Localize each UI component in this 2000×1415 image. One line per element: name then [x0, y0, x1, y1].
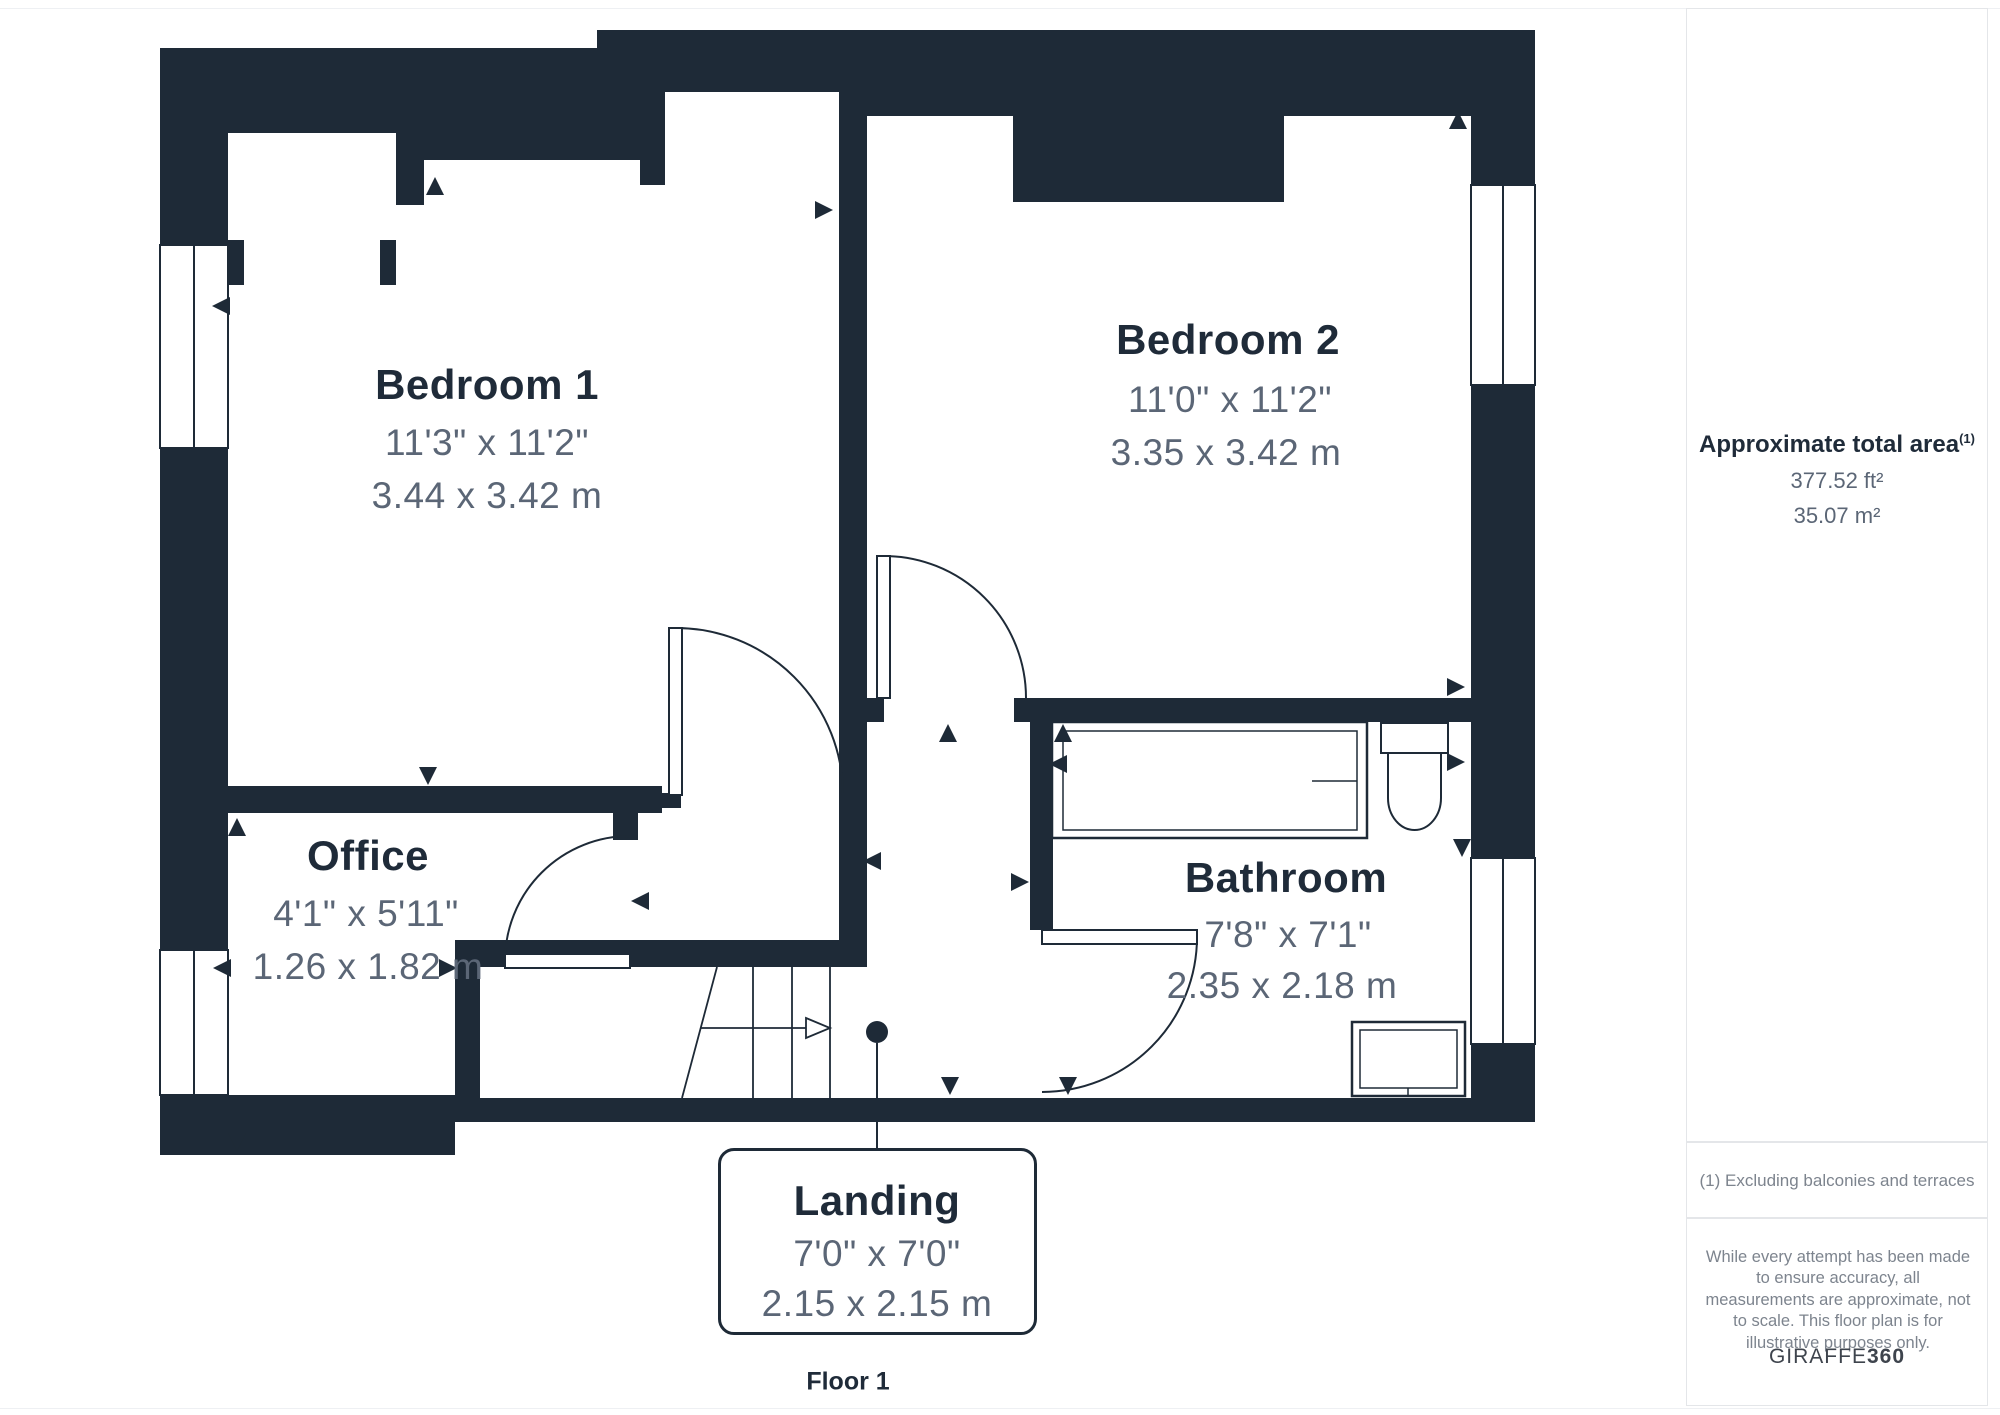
wall-segment	[424, 92, 640, 160]
wall-segment	[160, 1095, 455, 1155]
door-leaf	[669, 628, 682, 795]
area-title: Approximate total area(1)	[1687, 431, 1987, 459]
wall-segment	[867, 92, 1013, 116]
wall-segment	[228, 786, 662, 813]
area-value-m: 35.07 m²	[1687, 503, 1987, 529]
floor-plan-page: Bedroom 1 11'3" x 11'2" 3.44 x 3.42 m Be…	[0, 0, 2000, 1415]
wall-segment	[1284, 92, 1471, 116]
measure-arrow-down-icon	[1059, 1077, 1077, 1095]
door-leaf	[877, 556, 890, 698]
room-dims-imperial: 7'0" x 7'0"	[793, 1233, 960, 1275]
wall-segment	[640, 92, 665, 185]
room-dims-metric: 3.35 x 3.42 m	[1111, 432, 1342, 474]
door-swing-arc	[676, 628, 843, 795]
measure-arrow-left-icon	[631, 892, 649, 910]
disclaimer-text: While every attempt has been made to ens…	[1703, 1247, 1973, 1354]
wall-segment	[228, 92, 396, 133]
measure-arrow-right-icon	[1447, 678, 1465, 696]
room-dims-imperial: 11'0" x 11'2"	[1128, 379, 1332, 421]
area-title-text: Approximate total area	[1699, 431, 1959, 458]
toilet-bowl	[1388, 753, 1441, 830]
sidebar-area-panel: Approximate total area(1) 377.52 ft² 35.…	[1686, 8, 1988, 1142]
room-dims-metric: 2.35 x 2.18 m	[1167, 965, 1398, 1007]
wall-segment	[597, 30, 1535, 92]
measure-arrow-up-icon	[939, 724, 957, 742]
wall-stub	[228, 240, 244, 285]
wall-segment	[1014, 698, 1535, 722]
measure-arrow-right-icon	[1011, 873, 1029, 891]
floor-label: Floor 1	[806, 1368, 889, 1397]
wall-stub	[867, 698, 884, 722]
toilet-tank	[1381, 723, 1448, 753]
area-footnote-marker: (1)	[1959, 431, 1975, 446]
brand-secondary: 360	[1867, 1345, 1905, 1368]
brand-primary: GIRAFFE	[1769, 1345, 1867, 1368]
room-label-landing: Landing	[794, 1177, 961, 1225]
door-swing-arc	[884, 556, 1026, 698]
wall-segment	[396, 92, 424, 205]
footnote-text: (1) Excluding balconies and terraces	[1687, 1171, 1987, 1191]
door-leaf	[505, 954, 630, 968]
measure-arrow-down-icon	[419, 767, 437, 785]
room-label-bedroom2: Bedroom 2	[1116, 316, 1340, 364]
sink-outline	[1352, 1022, 1465, 1096]
wall-segment	[1030, 722, 1053, 930]
wall-segment-divider	[839, 92, 867, 967]
bathtub-outline	[1052, 722, 1367, 838]
room-dims-imperial: 11'3" x 11'2"	[385, 422, 589, 464]
giraffe360-logo: GIRAFFE360	[1687, 1345, 1987, 1369]
measure-arrow-down-icon	[1453, 839, 1471, 857]
door-swing-arc	[1042, 937, 1197, 1092]
room-label-bedroom1: Bedroom 1	[375, 361, 599, 409]
wall-segment	[160, 48, 597, 92]
sidebar-footnote-panel: (1) Excluding balconies and terraces	[1686, 1142, 1988, 1218]
stairs-group	[682, 967, 830, 1098]
room-dims-metric: 2.15 x 2.15 m	[762, 1283, 993, 1325]
area-value-ft: 377.52 ft²	[1687, 468, 1987, 494]
wall-segment	[455, 1098, 1535, 1122]
room-dims-imperial: 7'8" x 7'1"	[1204, 914, 1371, 956]
area-summary: Approximate total area(1) 377.52 ft² 35.…	[1687, 431, 1987, 529]
room-label-bathroom: Bathroom	[1185, 854, 1387, 902]
door-leaf	[1042, 930, 1197, 944]
leader-dot-icon	[866, 1021, 888, 1043]
measure-arrow-right-icon	[815, 201, 833, 219]
measure-arrow-down-icon	[941, 1077, 959, 1095]
room-dims-metric: 1.26 x 1.82 m	[253, 946, 484, 988]
landing-leader-group	[866, 1021, 888, 1148]
wall-stub	[380, 240, 396, 285]
fixtures-group	[1052, 722, 1465, 1096]
sidebar-disclaimer-panel: While every attempt has been made to ens…	[1686, 1218, 1988, 1406]
measure-arrow-up-icon	[426, 177, 444, 195]
room-dims-imperial: 4'1" x 5'11"	[273, 893, 459, 935]
room-label-office: Office	[307, 832, 429, 880]
measure-arrow-up-icon	[228, 818, 246, 836]
stair-direction-arrow-icon	[806, 1018, 830, 1038]
wall-segment	[1013, 92, 1284, 202]
stair-tread	[682, 967, 717, 1098]
wall-stub	[613, 805, 638, 840]
measure-arrow-right-icon	[1447, 753, 1465, 771]
room-dims-metric: 3.44 x 3.42 m	[372, 475, 603, 517]
